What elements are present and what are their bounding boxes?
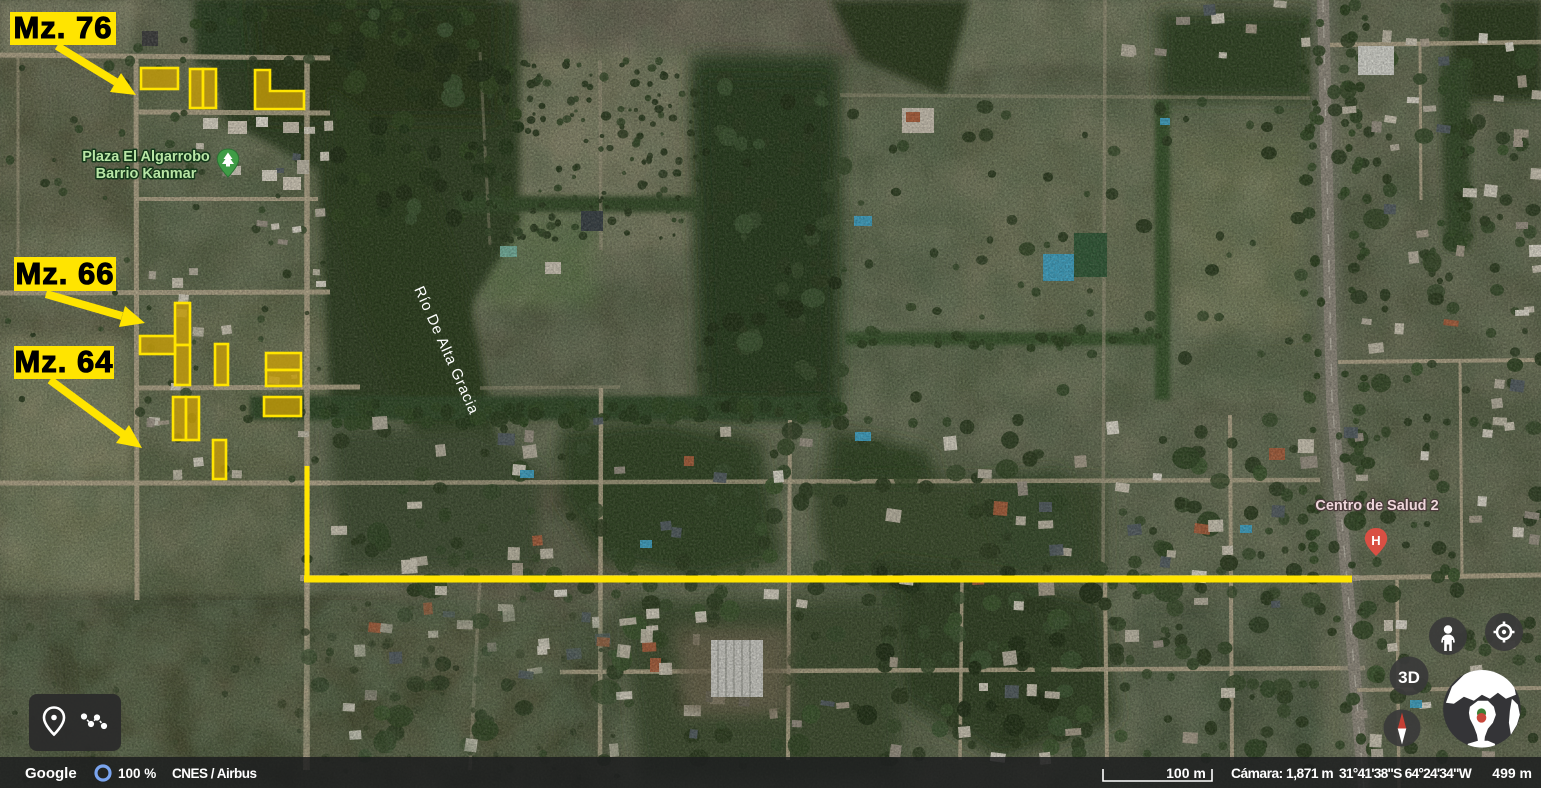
svg-text:Centro de Salud 2: Centro de Salud 2: [1315, 498, 1438, 514]
svg-text:100 m: 100 m: [1166, 765, 1206, 781]
svg-text:Google: Google: [25, 765, 77, 782]
svg-text:3D: 3D: [1398, 668, 1420, 687]
svg-text:Plaza El Algarrobo: Plaza El Algarrobo: [82, 149, 210, 165]
svg-text:31°41'38"S 64°24'34"W: 31°41'38"S 64°24'34"W: [1339, 766, 1473, 781]
svg-text:100 %: 100 %: [118, 766, 156, 781]
svg-text:H: H: [1371, 533, 1380, 548]
svg-text:499 m: 499 m: [1492, 765, 1532, 781]
svg-text:Cámara: 1,871 m: Cámara: 1,871 m: [1231, 766, 1333, 781]
svg-text:Mz. 64: Mz. 64: [14, 344, 113, 379]
svg-text:Mz. 76: Mz. 76: [13, 10, 112, 45]
svg-text:CNES / Airbus: CNES / Airbus: [172, 766, 257, 781]
svg-text:Mz. 66: Mz. 66: [15, 256, 114, 291]
svg-text:Barrio Kanmar: Barrio Kanmar: [96, 166, 197, 182]
